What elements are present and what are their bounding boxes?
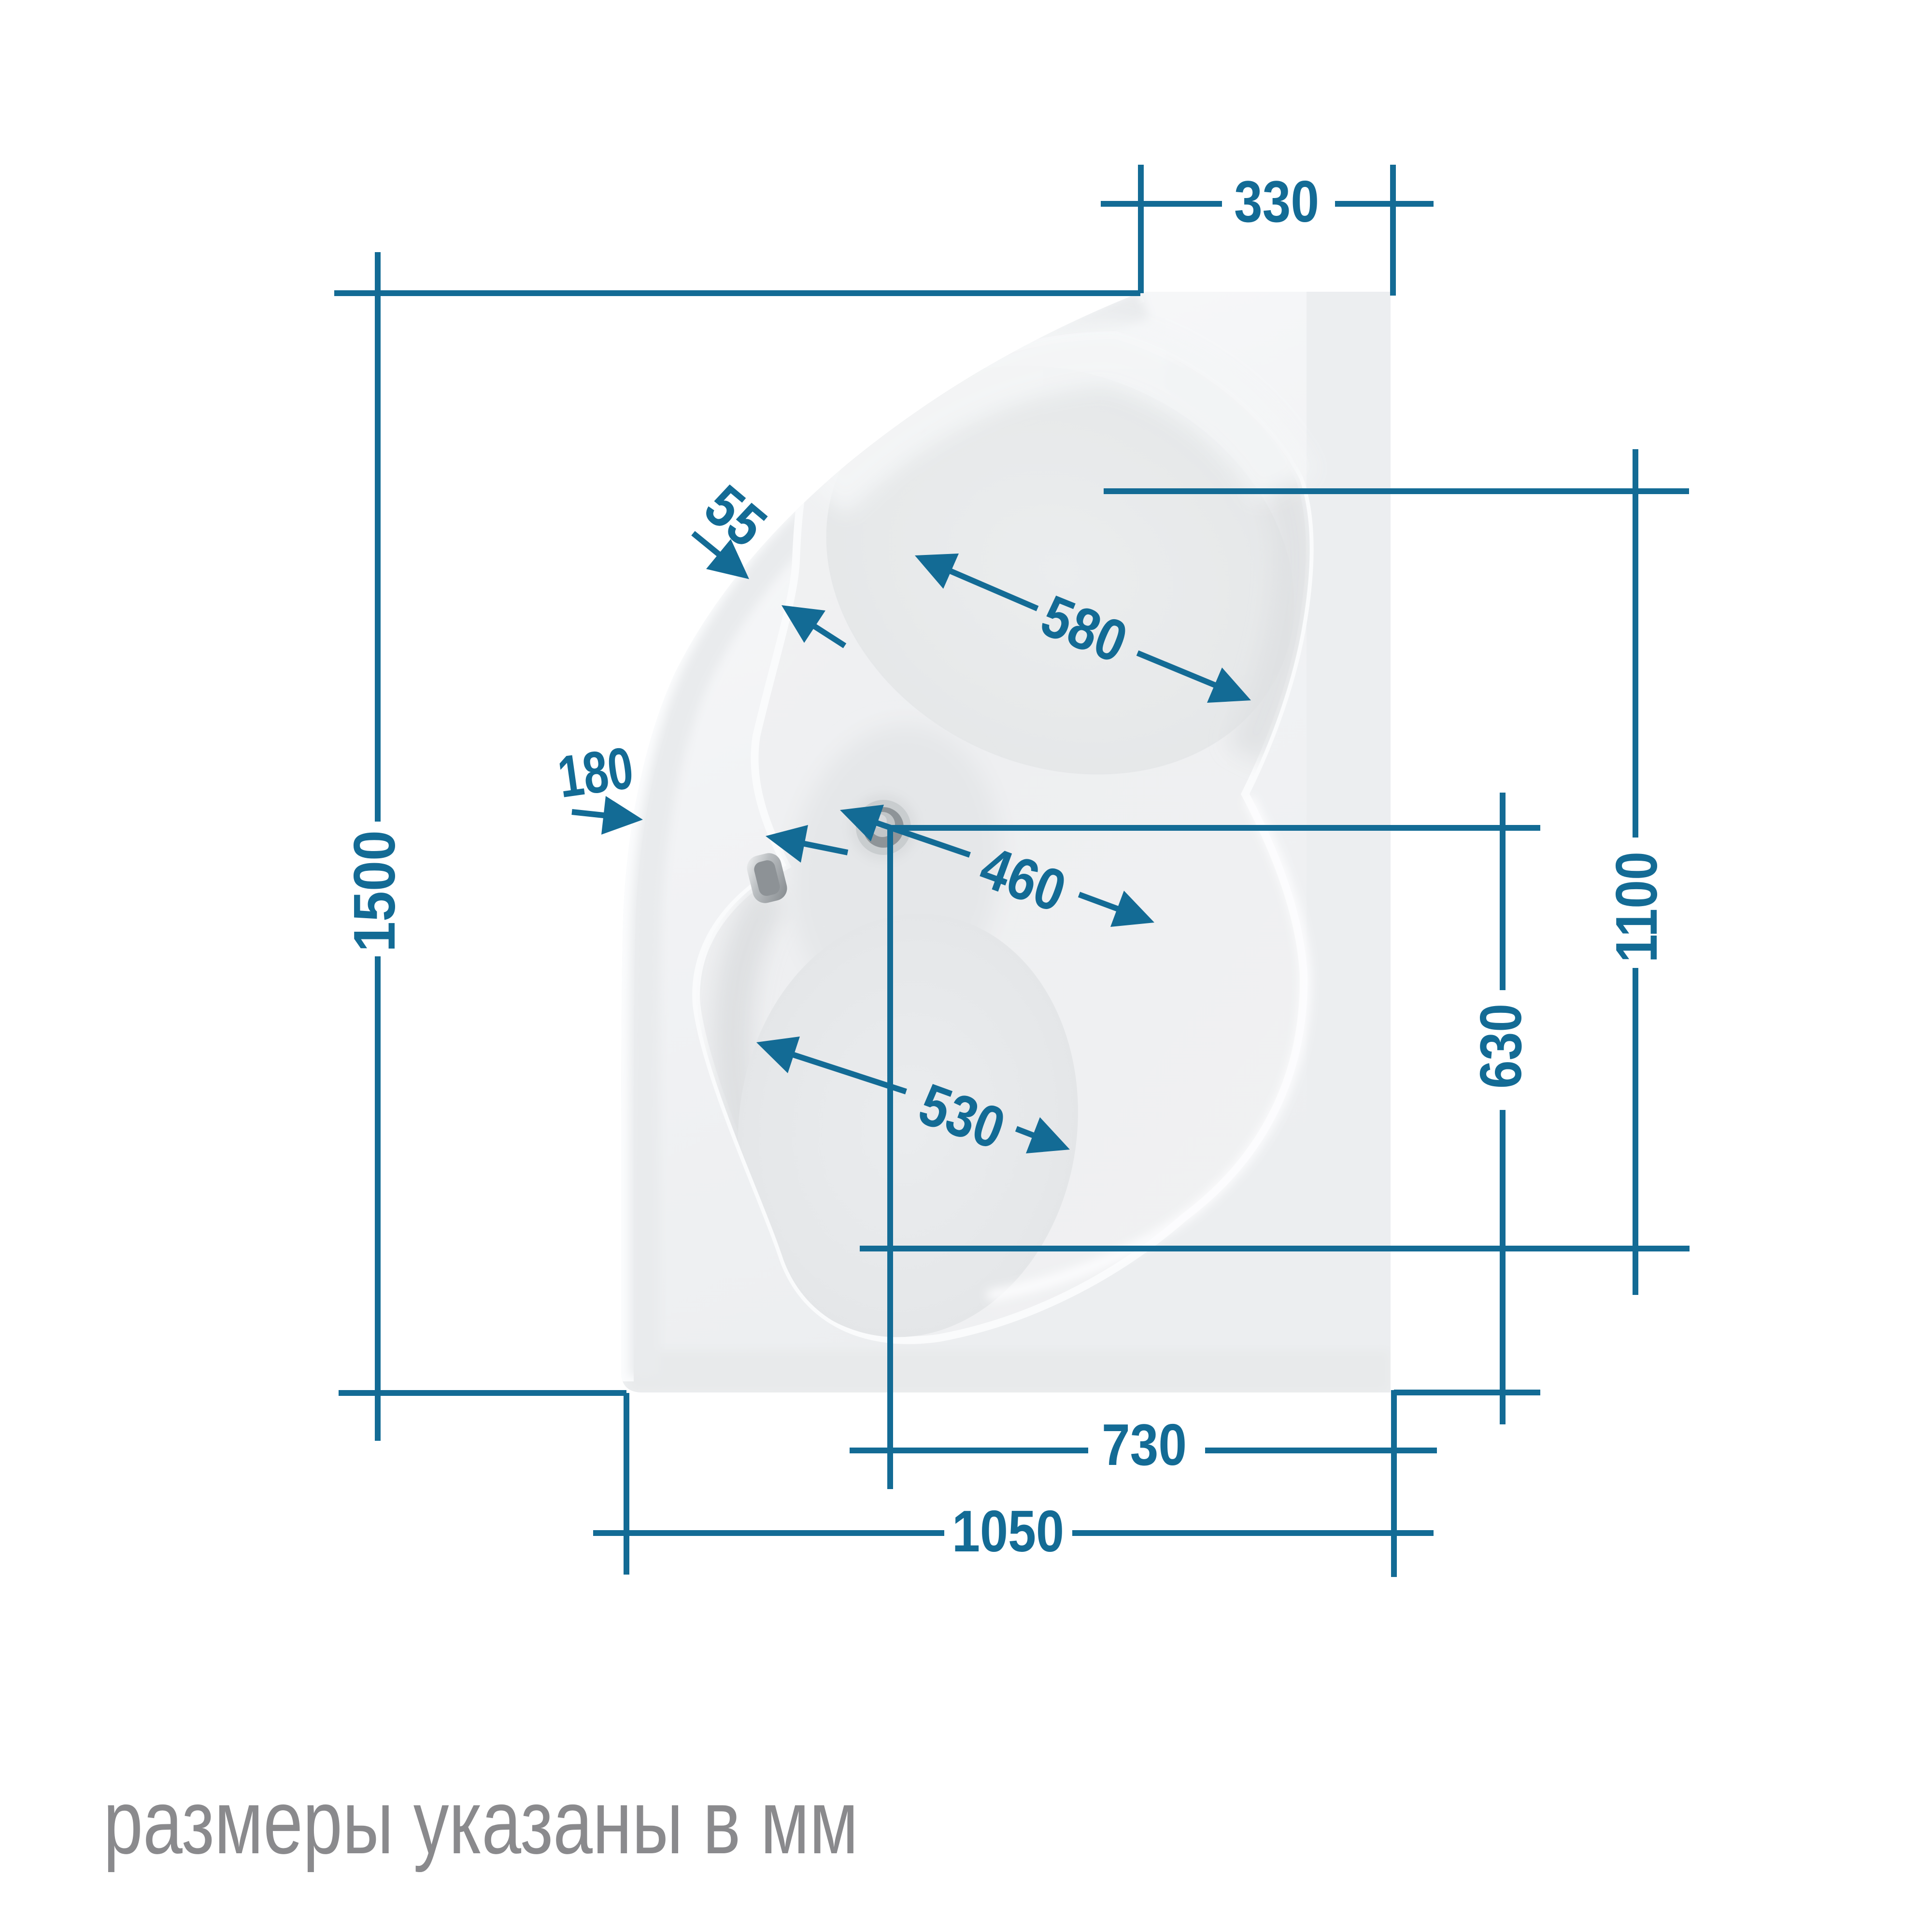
svg-text:630: 630	[1468, 1004, 1534, 1089]
svg-text:730: 730	[1102, 1412, 1187, 1477]
svg-text:1100: 1100	[1604, 852, 1669, 963]
svg-text:330: 330	[1234, 169, 1319, 234]
svg-text:1500: 1500	[341, 830, 407, 952]
svg-text:размеры указаны в мм: размеры указаны в мм	[103, 1771, 858, 1873]
svg-text:180: 180	[554, 735, 637, 810]
svg-text:1050: 1050	[952, 1498, 1064, 1564]
